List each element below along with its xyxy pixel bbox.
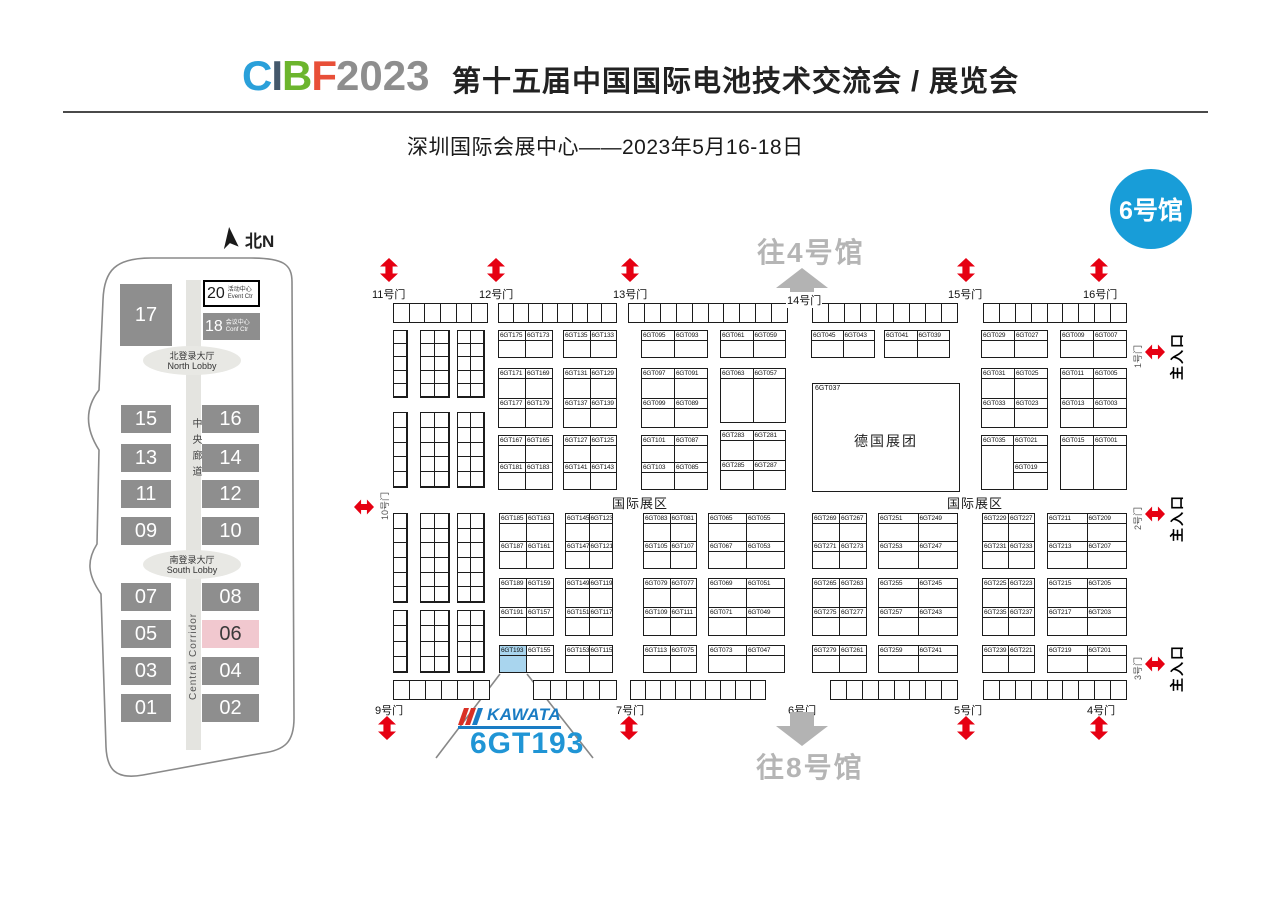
booth-label: 6GT261 xyxy=(840,646,866,656)
entrance-arrow-icon xyxy=(1143,504,1167,524)
booth-block: 6GT1756GT173 xyxy=(498,330,553,358)
booth-label: 6GT281 xyxy=(754,431,786,441)
booth-6GT095: 6GT095 xyxy=(642,331,675,357)
small-booth-cell xyxy=(394,304,410,322)
small-booth-cell xyxy=(471,357,484,370)
small-booth-cell xyxy=(1079,681,1095,699)
booth-6GT087: 6GT087 xyxy=(675,436,707,462)
small-booth-cell xyxy=(458,681,474,699)
small-booth-strip xyxy=(830,680,958,700)
small-booth-cell xyxy=(942,681,957,699)
booth-label: 6GT005 xyxy=(1094,369,1126,379)
booth-label: 6GT041 xyxy=(885,331,917,341)
booth-block: 6GT2256GT2236GT2356GT237 xyxy=(982,578,1035,636)
small-booth-cell xyxy=(458,331,471,344)
booth-label: 6GT039 xyxy=(918,331,950,341)
small-booth-cell xyxy=(394,587,407,602)
booth-label: 6GT089 xyxy=(675,399,707,409)
booth-block: 6GT0296GT027 xyxy=(981,330,1048,358)
booth-6GT057: 6GT057 xyxy=(754,369,786,422)
booth-6GT121: 6GT121 xyxy=(590,542,613,569)
booth-6GT255: 6GT255 xyxy=(879,579,919,607)
small-booth-cell xyxy=(831,681,847,699)
small-booth-cell xyxy=(457,304,473,322)
booth-label: 6GT227 xyxy=(1009,514,1034,524)
page-title: 第十五届中国国际电池技术交流会 / 展览会 xyxy=(452,58,1019,100)
small-booth-cell xyxy=(584,681,601,699)
small-booth-cell xyxy=(435,344,449,357)
booth-6GT237: 6GT237 xyxy=(1009,608,1034,636)
gate-arrow-icon xyxy=(486,258,506,282)
booth-6GT167: 6GT167 xyxy=(499,436,526,462)
gate-arrow-icon xyxy=(377,716,397,740)
booth-6GT187: 6GT187 xyxy=(500,542,527,569)
booth-label: 6GT279 xyxy=(813,646,839,656)
booth-label: 6GT137 xyxy=(564,399,590,409)
booth-label: 6GT209 xyxy=(1088,514,1127,524)
booth-6GT081: 6GT081 xyxy=(671,514,697,541)
gate-arrow-icon xyxy=(620,258,640,282)
booth-6GT033: 6GT033 xyxy=(982,399,1015,428)
booth-6GT127: 6GT127 xyxy=(564,436,591,462)
small-booth-cell xyxy=(471,344,484,357)
booth-label: 6GT217 xyxy=(1048,608,1087,618)
hall-01: 01 xyxy=(121,694,171,722)
booth-6GT063: 6GT063 xyxy=(721,369,754,422)
north-lobby: 北登录大厅North Lobby xyxy=(143,346,241,375)
small-booth-cell xyxy=(458,357,471,370)
small-booth-cell xyxy=(394,344,407,357)
booth-6GT177: 6GT177 xyxy=(499,399,526,428)
booth-6GT213: 6GT213 xyxy=(1048,542,1088,569)
booth-6GT023: 6GT023 xyxy=(1015,399,1047,428)
small-booth-cell xyxy=(421,611,435,626)
booth-block: 6GT0316GT0256GT0336GT023 xyxy=(981,368,1048,428)
small-booth-strip xyxy=(630,680,766,700)
booth-6GT191: 6GT191 xyxy=(500,608,527,636)
booth-6GT207: 6GT207 xyxy=(1088,542,1127,569)
booth-label: 6GT257 xyxy=(879,608,918,618)
booth-label: 6GT235 xyxy=(983,608,1008,618)
small-booth-cell xyxy=(558,304,573,322)
booth-6GT071: 6GT071 xyxy=(709,608,747,636)
booth-6GT287: 6GT287 xyxy=(754,461,786,490)
hall-17: 17 xyxy=(120,284,172,346)
booth-label: 6GT231 xyxy=(983,542,1008,552)
small-booth-cell xyxy=(926,681,942,699)
booth-6GT169: 6GT169 xyxy=(526,369,552,398)
booth-6GT253: 6GT253 xyxy=(879,542,919,569)
small-booth-cell xyxy=(394,642,407,657)
hall-14: 14 xyxy=(202,444,259,472)
booth-label: 6GT259 xyxy=(879,646,918,656)
hall-6-badge: 6号馆 xyxy=(1110,169,1192,249)
small-booth-cell xyxy=(600,681,616,699)
booth-label: 6GT119 xyxy=(590,579,613,589)
small-booth-cell xyxy=(894,304,910,322)
booth-block: 6GT1356GT133 xyxy=(563,330,617,358)
booth-6GT053: 6GT053 xyxy=(747,542,784,569)
small-booth-cell xyxy=(410,681,426,699)
small-booth-cell xyxy=(471,657,484,672)
small-booth-cell xyxy=(1048,304,1064,322)
logo-year: 2023 xyxy=(336,52,429,99)
small-booth-cell xyxy=(471,514,484,529)
booth-label: 6GT109 xyxy=(644,608,670,618)
booth-block: 6GT035 xyxy=(981,435,1014,490)
booth-6GT205: 6GT205 xyxy=(1088,579,1127,607)
hall-13: 13 xyxy=(121,444,171,472)
booth-6GT107: 6GT107 xyxy=(671,542,697,569)
small-booth-cell xyxy=(435,472,449,487)
small-booth-cell xyxy=(471,587,484,602)
booth-6GT231: 6GT231 xyxy=(983,542,1009,569)
small-booth-cell xyxy=(751,681,765,699)
booth-label: 6GT023 xyxy=(1015,399,1047,409)
booth-label: 6GT073 xyxy=(709,646,746,656)
booth-label: 6GT225 xyxy=(983,579,1008,589)
small-booth-cell xyxy=(394,331,407,344)
small-booth-cell xyxy=(394,384,407,397)
gate-10-arrow-icon xyxy=(352,497,376,517)
gate-label: 11号门 xyxy=(371,286,406,302)
booth-6GT185: 6GT185 xyxy=(500,514,527,541)
booth-6GT251: 6GT251 xyxy=(879,514,919,541)
small-booth-cell xyxy=(926,304,942,322)
small-booth-cell xyxy=(847,681,863,699)
small-booth-cell xyxy=(435,611,449,626)
small-booth-cell xyxy=(458,344,471,357)
international-zone-label-left: 国际展区 xyxy=(612,493,668,512)
small-booth-cell xyxy=(471,642,484,657)
small-booth-group xyxy=(393,513,408,603)
booth-6GT159: 6GT159 xyxy=(527,579,553,607)
small-booth-cell xyxy=(910,681,926,699)
gate-arrow-icon xyxy=(619,716,639,740)
small-booth-cell xyxy=(394,558,407,573)
booth-6GT161: 6GT161 xyxy=(527,542,553,569)
hall-09: 09 xyxy=(121,517,171,545)
to-hall-8-arrow-icon xyxy=(776,712,828,746)
booth-6GT013: 6GT013 xyxy=(1061,399,1094,428)
small-booth-cell xyxy=(471,457,484,472)
small-booth-cell xyxy=(942,304,957,322)
booth-label: 6GT061 xyxy=(721,331,753,341)
booth-label: 6GT145 xyxy=(566,514,589,524)
small-booth-cell xyxy=(845,304,861,322)
booth-6GT153: 6GT153 xyxy=(566,646,590,672)
small-booth-cell xyxy=(573,304,588,322)
small-booth-cell xyxy=(394,514,407,529)
booth-label: 6GT253 xyxy=(879,542,918,552)
booth-6GT285: 6GT285 xyxy=(721,461,754,490)
booth-6GT021: 6GT021 xyxy=(1014,436,1047,462)
header-divider xyxy=(63,111,1208,113)
small-booth-cell xyxy=(474,681,489,699)
entrance-arrow-icon xyxy=(1143,342,1167,362)
booth-label: 6GT077 xyxy=(671,579,697,589)
booth-label: 6GT271 xyxy=(813,542,839,552)
german-pavilion-booth-number: 6GT037 xyxy=(815,385,840,392)
small-booth-cell xyxy=(421,558,435,573)
booth-6GT135: 6GT135 xyxy=(564,331,591,357)
booth-6GT069: 6GT069 xyxy=(709,579,747,607)
south-lobby: 南登录大厅South Lobby xyxy=(143,550,241,579)
hall-20: 20 活动中心Event Ctr xyxy=(203,280,260,307)
small-booth-cell xyxy=(567,681,584,699)
booth-block: 6GT0636GT057 xyxy=(720,368,786,423)
small-booth-cell xyxy=(724,304,740,322)
booth-label: 6GT203 xyxy=(1088,608,1127,618)
small-booth-group xyxy=(420,412,450,488)
booth-6GT275: 6GT275 xyxy=(813,608,840,636)
booth-label: 6GT233 xyxy=(1009,542,1034,552)
booth-label: 6GT083 xyxy=(644,514,670,524)
booth-block: 6GT2556GT2456GT2576GT243 xyxy=(878,578,958,636)
booth-6GT117: 6GT117 xyxy=(590,608,613,636)
small-booth-cell xyxy=(1048,681,1064,699)
booth-label: 6GT175 xyxy=(499,331,525,341)
small-booth-cell xyxy=(458,428,471,443)
small-booth-cell xyxy=(910,304,926,322)
booth-6GT149: 6GT149 xyxy=(566,579,590,607)
booth-label: 6GT187 xyxy=(500,542,526,552)
booth-label: 6GT047 xyxy=(747,646,784,656)
small-booth-cell xyxy=(1111,681,1126,699)
small-booth-cell xyxy=(543,304,558,322)
small-booth-cell xyxy=(435,457,449,472)
booth-6GT125: 6GT125 xyxy=(591,436,617,462)
booth-label: 6GT057 xyxy=(754,369,786,379)
booth-label: 6GT133 xyxy=(591,331,617,341)
small-booth-cell xyxy=(471,443,484,458)
booth-block: 6GT0216GT019 xyxy=(1013,435,1048,490)
small-booth-cell xyxy=(646,681,661,699)
booth-6GT215: 6GT215 xyxy=(1048,579,1088,607)
small-booth-cell xyxy=(394,371,407,384)
booth-6GT179: 6GT179 xyxy=(526,399,552,428)
small-booth-cell xyxy=(1095,304,1111,322)
small-booth-cell xyxy=(394,611,407,626)
small-booth-cell xyxy=(676,681,691,699)
booth-label: 6GT103 xyxy=(642,463,674,473)
small-booth-cell xyxy=(421,573,435,588)
small-booth-cell xyxy=(394,357,407,370)
booth-label: 6GT219 xyxy=(1048,646,1087,656)
small-booth-cell xyxy=(442,681,458,699)
booth-6GT083: 6GT083 xyxy=(644,514,671,541)
small-booth-cell xyxy=(421,587,435,602)
booth-6GT035: 6GT035 xyxy=(982,436,1013,489)
booth-6GT119: 6GT119 xyxy=(590,579,613,607)
small-booth-cell xyxy=(435,587,449,602)
booth-6GT009: 6GT009 xyxy=(1061,331,1094,357)
booth-label: 6GT099 xyxy=(642,399,674,409)
booth-label: 6GT239 xyxy=(983,646,1008,656)
booth-6GT027: 6GT027 xyxy=(1015,331,1047,357)
booth-6GT245: 6GT245 xyxy=(919,579,958,607)
small-booth-strip xyxy=(628,303,788,323)
booth-block: 6GT2696GT2676GT2716GT273 xyxy=(812,513,867,569)
booth-label: 6GT107 xyxy=(671,542,697,552)
booth-label: 6GT269 xyxy=(813,514,839,524)
booth-block: 6GT1316GT1296GT1376GT139 xyxy=(563,368,617,428)
booth-label: 6GT007 xyxy=(1094,331,1126,341)
booth-6GT225: 6GT225 xyxy=(983,579,1009,607)
small-booth-cell xyxy=(693,304,709,322)
booth-label: 6GT189 xyxy=(500,579,526,589)
small-booth-cell xyxy=(534,681,551,699)
booth-6GT077: 6GT077 xyxy=(671,579,697,607)
small-booth-cell xyxy=(458,626,471,641)
hall-15: 15 xyxy=(121,405,171,433)
booth-block: 6GT0736GT047 xyxy=(708,645,785,673)
booth-block: 6GT1016GT0876GT1036GT085 xyxy=(641,435,708,490)
small-booth-cell xyxy=(1063,304,1079,322)
booth-6GT103: 6GT103 xyxy=(642,463,675,489)
corridor-label-cn: 中央廊道 xyxy=(188,418,203,482)
booth-label: 6GT009 xyxy=(1061,331,1093,341)
small-booth-cell xyxy=(435,657,449,672)
booth-6GT041: 6GT041 xyxy=(885,331,918,357)
small-booth-cell xyxy=(394,443,407,458)
small-booth-cell xyxy=(394,657,407,672)
booth-label: 6GT171 xyxy=(499,369,525,379)
booth-label: 6GT021 xyxy=(1014,436,1047,446)
to-hall-4-label: 往4号馆 xyxy=(757,231,865,271)
booth-label: 6GT221 xyxy=(1009,646,1034,656)
booth-6GT131: 6GT131 xyxy=(564,369,591,398)
small-booth-cell xyxy=(458,457,471,472)
small-booth-cell xyxy=(471,558,484,573)
booth-6GT155: 6GT155 xyxy=(527,646,553,672)
booth-label: 6GT263 xyxy=(840,579,866,589)
small-booth-cell xyxy=(1079,304,1095,322)
booth-6GT189: 6GT189 xyxy=(500,579,527,607)
small-booth-cell xyxy=(394,626,407,641)
booth-6GT093: 6GT093 xyxy=(675,331,707,357)
hall-08: 08 xyxy=(202,583,259,611)
booth-6GT075: 6GT075 xyxy=(671,646,697,672)
booth-label: 6GT045 xyxy=(812,331,843,341)
booth-6GT271: 6GT271 xyxy=(813,542,840,569)
booth-block: 6GT2196GT201 xyxy=(1047,645,1127,673)
booth-block: 6GT2156GT2056GT2176GT203 xyxy=(1047,578,1127,636)
booth-6GT257: 6GT257 xyxy=(879,608,919,636)
booth-6GT181: 6GT181 xyxy=(499,463,526,489)
booth-6GT243: 6GT243 xyxy=(919,608,958,636)
booth-label: 6GT135 xyxy=(564,331,590,341)
small-booth-group xyxy=(457,513,485,603)
booth-label: 6GT161 xyxy=(527,542,553,552)
small-booth-cell xyxy=(421,543,435,558)
small-booth-cell xyxy=(877,304,893,322)
booth-label: 6GT139 xyxy=(591,399,617,409)
booth-label: 6GT091 xyxy=(675,369,707,379)
hall-18: 18 会议中心Conf Ctr xyxy=(203,313,260,340)
booth-label: 6GT147 xyxy=(566,542,589,552)
booth-label: 6GT069 xyxy=(709,579,746,589)
booth-label: 6GT247 xyxy=(919,542,958,552)
booth-6GT203: 6GT203 xyxy=(1088,608,1127,636)
booth-6GT011: 6GT011 xyxy=(1061,369,1094,398)
small-booth-cell xyxy=(1000,681,1016,699)
booth-label: 6GT255 xyxy=(879,579,918,589)
small-booth-cell xyxy=(421,357,435,370)
small-booth-group xyxy=(457,330,485,398)
booth-label: 6GT249 xyxy=(919,514,958,524)
booth-label: 6GT053 xyxy=(747,542,784,552)
booth-6GT211: 6GT211 xyxy=(1048,514,1088,541)
booth-label: 6GT013 xyxy=(1061,399,1093,409)
booth-6GT015: 6GT015 xyxy=(1061,436,1094,489)
small-booth-cell xyxy=(435,514,449,529)
logo-letter: I xyxy=(271,52,282,99)
small-booth-cell xyxy=(458,543,471,558)
small-booth-cell xyxy=(435,331,449,344)
booth-label: 6GT075 xyxy=(671,646,697,656)
booth-label: 6GT027 xyxy=(1015,331,1047,341)
small-booth-cell xyxy=(458,611,471,626)
booth-6GT085: 6GT085 xyxy=(675,463,707,489)
booth-label: 6GT173 xyxy=(526,331,552,341)
small-booth-cell xyxy=(529,304,544,322)
booth-6GT241: 6GT241 xyxy=(919,646,958,672)
small-booth-cell xyxy=(435,573,449,588)
booth-6GT109: 6GT109 xyxy=(644,608,671,636)
booth-label: 6GT211 xyxy=(1048,514,1087,524)
booth-label: 6GT011 xyxy=(1061,369,1093,379)
booth-block: 6GT0116GT0056GT0136GT003 xyxy=(1060,368,1127,428)
booth-label: 6GT163 xyxy=(527,514,553,524)
booth-6GT059: 6GT059 xyxy=(754,331,786,357)
booth-block: 6GT2596GT241 xyxy=(878,645,958,673)
small-booth-cell xyxy=(471,413,484,428)
hall-11: 11 xyxy=(121,480,171,508)
small-booth-cell xyxy=(1016,304,1032,322)
booth-label: 6GT105 xyxy=(644,542,670,552)
booth-label: 6GT169 xyxy=(526,369,552,379)
small-booth-cell xyxy=(421,626,435,641)
booth-block: 6GT0976GT0916GT0996GT089 xyxy=(641,368,708,428)
booth-6GT175: 6GT175 xyxy=(499,331,526,357)
logo-letter: F xyxy=(311,52,336,99)
booth-label: 6GT121 xyxy=(590,542,613,552)
booth-6GT239: 6GT239 xyxy=(983,646,1009,672)
booth-6GT145: 6GT145 xyxy=(566,514,590,541)
hall-16: 16 xyxy=(202,405,259,433)
booth-6GT171: 6GT171 xyxy=(499,369,526,398)
small-booth-cell xyxy=(772,304,787,322)
small-booth-strip xyxy=(812,303,958,323)
booth-6GT163: 6GT163 xyxy=(527,514,553,541)
booth-label: 6GT215 xyxy=(1048,579,1087,589)
small-booth-cell xyxy=(435,626,449,641)
booth-label: 6GT201 xyxy=(1088,646,1127,656)
booth-6GT261: 6GT261 xyxy=(840,646,866,672)
logo-letter: C xyxy=(242,52,271,99)
small-booth-cell xyxy=(441,304,457,322)
small-booth-cell xyxy=(984,681,1000,699)
small-booth-cell xyxy=(458,472,471,487)
small-booth-strip xyxy=(393,680,490,700)
booth-label: 6GT205 xyxy=(1088,579,1127,589)
kawata-logo: KAWATA xyxy=(458,705,561,729)
booth-block: 6GT0796GT0776GT1096GT111 xyxy=(643,578,697,636)
booth-block: 6GT2116GT2096GT2136GT207 xyxy=(1047,513,1127,569)
booth-6GT101: 6GT101 xyxy=(642,436,675,462)
booth-label: 6GT267 xyxy=(840,514,866,524)
